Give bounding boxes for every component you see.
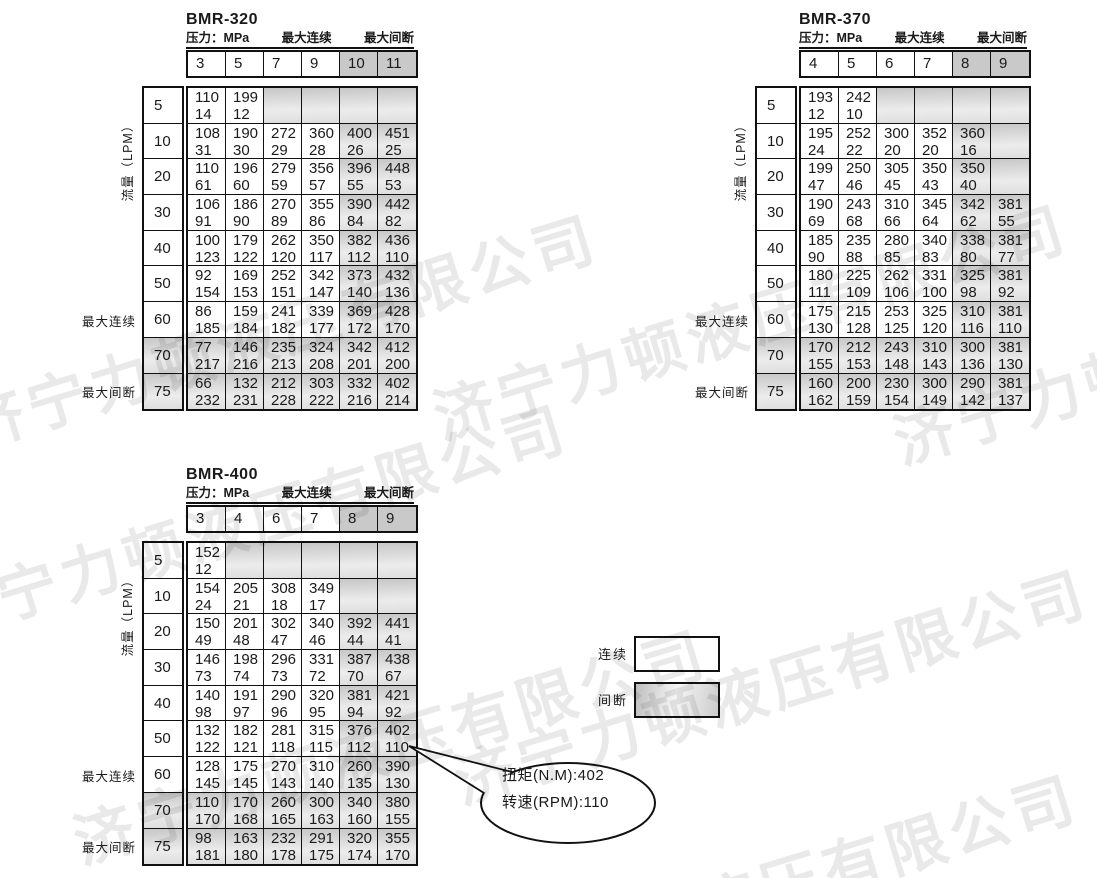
torque-value: 170 <box>808 339 838 356</box>
torque-speed-cell: 28085 <box>877 231 915 267</box>
torque-speed-cell: 40026 <box>340 124 378 160</box>
speed-value: 184 <box>233 320 263 337</box>
torque-value: 86 <box>195 303 225 320</box>
torque-speed-cell: 19030 <box>226 124 264 160</box>
speed-value: 100 <box>922 284 952 301</box>
torque-speed-cell: 402214 <box>378 374 416 410</box>
torque-speed-cell: 42192 <box>378 686 416 722</box>
torque-value: 350 <box>960 160 990 177</box>
torque-value: 100 <box>195 232 225 249</box>
torque-value: 396 <box>347 160 377 177</box>
torque-speed-cell: 23588 <box>839 231 877 267</box>
torque-speed-cell: 235213 <box>264 338 302 374</box>
flow-header-cell: 40 <box>144 686 182 722</box>
speed-value: 98 <box>960 284 990 301</box>
speed-value: 10 <box>846 106 876 123</box>
torque-speed-cell: 310143 <box>915 338 953 374</box>
torque-speed-cell: 25046 <box>839 159 877 195</box>
speed-value: 46 <box>309 632 339 649</box>
speed-value: 122 <box>195 739 225 756</box>
speed-value: 155 <box>385 811 416 828</box>
torque-value: 77 <box>195 339 225 356</box>
torque-speed-cell: 11061 <box>188 159 226 195</box>
torque-speed-cell: 281118 <box>264 721 302 757</box>
max-intermittent-col-label: 最大间断 <box>364 27 414 46</box>
torque-speed-cell: 376112 <box>340 721 378 757</box>
speed-value: 62 <box>960 213 990 230</box>
torque-value: 190 <box>233 125 263 142</box>
speed-value: 116 <box>960 320 990 337</box>
speed-value: 201 <box>347 356 377 373</box>
speed-value: 92 <box>998 284 1029 301</box>
torque-speed-cell: 20521 <box>226 579 264 615</box>
torque-speed-cell: 169153 <box>226 266 264 302</box>
speed-value: 72 <box>309 668 339 685</box>
torque-speed-cell: 170168 <box>226 793 264 829</box>
torque-speed-cell: 19524 <box>801 124 839 160</box>
pressure-header-cell: 9 <box>302 52 340 76</box>
flow-header-cell: 10 <box>757 124 795 160</box>
speed-value: 123 <box>195 249 225 266</box>
torque-speed-cell: 24210 <box>839 88 877 124</box>
empty-cell <box>378 88 416 124</box>
legend-intermittent-swatch <box>634 682 720 718</box>
torque-value: 392 <box>347 615 377 632</box>
torque-speed-cell: 19197 <box>226 686 264 722</box>
callout-torque-text: 扭矩(N.M):402 <box>502 764 604 785</box>
callout-tail-outline <box>409 746 512 793</box>
empty-cell <box>302 543 340 579</box>
speed-value: 90 <box>233 213 263 230</box>
torque-speed-cell: 432136 <box>378 266 416 302</box>
speed-value: 143 <box>922 356 952 373</box>
torque-speed-cell: 27229 <box>264 124 302 160</box>
torque-value: 253 <box>884 303 914 320</box>
torque-value: 169 <box>233 267 263 284</box>
torque-value: 196 <box>233 160 263 177</box>
max-continuous-row-label: 最大连续 <box>78 311 136 330</box>
torque-value: 300 <box>309 794 339 811</box>
torque-speed-grid: 1521215424205213081834917150492014830247… <box>186 541 418 866</box>
torque-value: 331 <box>309 651 339 668</box>
speed-value: 67 <box>385 668 416 685</box>
flow-header-cell: 60 <box>757 302 795 338</box>
torque-value: 436 <box>385 232 416 249</box>
torque-value: 339 <box>309 303 339 320</box>
torque-speed-cell: 159184 <box>226 302 264 338</box>
speed-value: 110 <box>998 320 1029 337</box>
torque-speed-cell: 262106 <box>877 266 915 302</box>
pressure-header-cell: 8 <box>340 507 378 531</box>
speed-value: 145 <box>233 775 263 792</box>
torque-value: 310 <box>922 339 952 356</box>
torque-value: 281 <box>271 722 301 739</box>
torque-value: 232 <box>271 830 301 847</box>
speed-value: 45 <box>884 177 914 194</box>
torque-speed-cell: 32598 <box>953 266 991 302</box>
speed-value: 174 <box>347 847 377 864</box>
torque-speed-cell: 34083 <box>915 231 953 267</box>
torque-value: 340 <box>347 794 377 811</box>
flow-header-cell: 70 <box>144 338 182 374</box>
torque-speed-cell: 182121 <box>226 721 264 757</box>
torque-value: 140 <box>195 687 225 704</box>
speed-value: 142 <box>960 392 990 409</box>
speed-value: 43 <box>922 177 952 194</box>
torque-speed-cell: 315115 <box>302 721 340 757</box>
speed-value: 136 <box>385 284 416 301</box>
torque-speed-cell: 14098 <box>188 686 226 722</box>
torque-speed-cell: 39244 <box>340 614 378 650</box>
speed-value: 57 <box>309 177 339 194</box>
pressure-header-cell: 7 <box>264 52 302 76</box>
empty-cell <box>915 88 953 124</box>
pressure-header-cell: 7 <box>302 507 340 531</box>
speed-value: 16 <box>960 142 990 159</box>
speed-value: 120 <box>922 320 952 337</box>
torque-speed-cell: 19947 <box>801 159 839 195</box>
torque-speed-cell: 310116 <box>953 302 991 338</box>
speed-value: 137 <box>998 392 1029 409</box>
torque-value: 305 <box>884 160 914 177</box>
empty-cell <box>378 543 416 579</box>
speed-value: 208 <box>309 356 339 373</box>
torque-value: 448 <box>385 160 416 177</box>
torque-value: 390 <box>385 758 416 775</box>
torque-speed-cell: 18590 <box>801 231 839 267</box>
speed-value: 86 <box>309 213 339 230</box>
flow-header-cell: 20 <box>144 159 182 195</box>
torque-value: 243 <box>846 196 876 213</box>
torque-value: 340 <box>309 615 339 632</box>
torque-value: 98 <box>195 830 225 847</box>
torque-speed-cell: 303222 <box>302 374 340 410</box>
torque-speed-cell: 212228 <box>264 374 302 410</box>
torque-speed-cell: 15049 <box>188 614 226 650</box>
torque-speed-cell: 35043 <box>915 159 953 195</box>
pressure-header-cell: 9 <box>991 52 1029 76</box>
torque-speed-cell: 320174 <box>340 829 378 865</box>
speed-value: 73 <box>271 668 301 685</box>
torque-value: 170 <box>233 794 263 811</box>
torque-speed-cell: 230154 <box>877 374 915 410</box>
empty-cell <box>264 88 302 124</box>
speed-value: 21 <box>233 597 263 614</box>
speed-value: 24 <box>195 597 225 614</box>
speed-value: 64 <box>922 213 952 230</box>
legend-intermittent-label: 间断 <box>556 690 628 709</box>
torque-speed-cell: 44282 <box>378 195 416 231</box>
torque-speed-cell: 260135 <box>340 757 378 793</box>
torque-value: 342 <box>960 196 990 213</box>
flow-header-cell: 40 <box>757 231 795 267</box>
speed-value: 162 <box>808 392 838 409</box>
speed-value: 47 <box>271 632 301 649</box>
torque-speed-cell: 30545 <box>877 159 915 195</box>
torque-value: 360 <box>960 125 990 142</box>
torque-value: 369 <box>347 303 377 320</box>
callout-tail-fill <box>409 746 512 793</box>
pressure-header-cell: 6 <box>264 507 302 531</box>
pressure-column-headers: 35791011 <box>186 50 418 78</box>
speed-value: 20 <box>922 142 952 159</box>
flow-header-cell: 5 <box>757 88 795 124</box>
torque-speed-cell: 19874 <box>226 650 264 686</box>
speed-value: 135 <box>347 775 377 792</box>
pressure-column-headers: 456789 <box>799 50 1031 78</box>
torque-value: 252 <box>846 125 876 142</box>
torque-value: 160 <box>808 375 838 392</box>
torque-value: 381 <box>347 687 377 704</box>
torque-speed-cell: 14673 <box>188 650 226 686</box>
torque-speed-cell: 29096 <box>264 686 302 722</box>
torque-speed-cell: 179122 <box>226 231 264 267</box>
torque-value: 198 <box>233 651 263 668</box>
torque-speed-cell: 291175 <box>302 829 340 865</box>
torque-speed-cell: 262120 <box>264 231 302 267</box>
speed-value: 200 <box>385 356 416 373</box>
speed-value: 140 <box>309 775 339 792</box>
torque-value: 342 <box>347 339 377 356</box>
torque-speed-cell: 32095 <box>302 686 340 722</box>
torque-value: 159 <box>233 303 263 320</box>
torque-value: 186 <box>233 196 263 213</box>
speed-value: 48 <box>233 632 263 649</box>
motor-table-bmr-400: BMR-400 压力：MPa 最大连续 最大间断 346789 流量（LPM） … <box>142 469 418 869</box>
speed-value: 170 <box>385 320 416 337</box>
torque-value: 152 <box>195 544 225 561</box>
torque-speed-cell: 34917 <box>302 579 340 615</box>
torque-value: 387 <box>347 651 377 668</box>
torque-value: 360 <box>309 125 339 142</box>
torque-speed-cell: 92154 <box>188 266 226 302</box>
torque-speed-cell: 241182 <box>264 302 302 338</box>
speed-value: 177 <box>309 320 339 337</box>
torque-value: 381 <box>998 339 1029 356</box>
pressure-header-cell: 11 <box>378 52 416 76</box>
torque-value: 199 <box>233 89 263 106</box>
torque-speed-cell: 36028 <box>302 124 340 160</box>
torque-speed-cell: 412200 <box>378 338 416 374</box>
empty-cell <box>226 543 264 579</box>
speed-value: 159 <box>846 392 876 409</box>
torque-value: 320 <box>309 687 339 704</box>
torque-value: 201 <box>233 615 263 632</box>
torque-speed-cell: 310140 <box>302 757 340 793</box>
speed-value: 68 <box>846 213 876 230</box>
torque-speed-cell: 34046 <box>302 614 340 650</box>
torque-speed-cell: 253125 <box>877 302 915 338</box>
speed-value: 14 <box>195 106 225 123</box>
speed-value: 70 <box>347 668 377 685</box>
max-intermittent-row-label: 最大间断 <box>78 837 136 856</box>
pressure-header-row: 压力：MPa 最大连续 最大间断 <box>186 31 414 49</box>
pressure-header-cell: 3 <box>188 52 226 76</box>
speed-value: 153 <box>233 284 263 301</box>
torque-speed-cell: 170155 <box>801 338 839 374</box>
pressure-header-cell: 5 <box>839 52 877 76</box>
speed-value: 47 <box>808 177 838 194</box>
speed-value: 55 <box>347 177 377 194</box>
torque-value: 421 <box>385 687 416 704</box>
torque-value: 442 <box>385 196 416 213</box>
speed-value: 41 <box>385 632 416 649</box>
torque-value: 338 <box>960 232 990 249</box>
pressure-header-cell: 8 <box>953 52 991 76</box>
torque-value: 310 <box>309 758 339 775</box>
torque-value: 350 <box>922 160 952 177</box>
torque-value: 132 <box>233 375 263 392</box>
speed-value: 175 <box>309 847 339 864</box>
speed-value: 106 <box>884 284 914 301</box>
torque-value: 212 <box>846 339 876 356</box>
torque-value: 260 <box>271 794 301 811</box>
torque-value: 402 <box>385 722 416 739</box>
torque-value: 315 <box>309 722 339 739</box>
speed-value: 168 <box>233 811 263 828</box>
torque-speed-cell: 232178 <box>264 829 302 865</box>
speed-value: 82 <box>385 213 416 230</box>
speed-value: 154 <box>195 284 225 301</box>
torque-speed-cell: 428170 <box>378 302 416 338</box>
torque-value: 191 <box>233 687 263 704</box>
torque-speed-cell: 43867 <box>378 650 416 686</box>
torque-value: 390 <box>347 196 377 213</box>
torque-speed-cell: 402110 <box>378 721 416 757</box>
torque-value: 291 <box>309 830 339 847</box>
speed-value: 98 <box>195 704 225 721</box>
torque-value: 182 <box>233 722 263 739</box>
speed-value: 232 <box>195 392 225 409</box>
torque-speed-cell: 342147 <box>302 266 340 302</box>
flow-header-cell: 50 <box>144 721 182 757</box>
speed-value: 31 <box>195 142 225 159</box>
speed-value: 170 <box>385 847 416 864</box>
torque-speed-cell: 325120 <box>915 302 953 338</box>
torque-value: 250 <box>846 160 876 177</box>
flow-header-cell: 20 <box>757 159 795 195</box>
flow-header-cell: 75 <box>144 829 182 865</box>
torque-speed-cell: 332216 <box>340 374 378 410</box>
torque-speed-cell: 38155 <box>991 195 1029 231</box>
torque-speed-cell: 225109 <box>839 266 877 302</box>
torque-value: 381 <box>998 375 1029 392</box>
torque-speed-cell: 300149 <box>915 374 953 410</box>
torque-speed-cell: 132122 <box>188 721 226 757</box>
speed-value: 55 <box>998 213 1029 230</box>
speed-value: 120 <box>271 249 301 266</box>
torque-value: 279 <box>271 160 301 177</box>
speed-value: 112 <box>347 249 377 266</box>
speed-value: 49 <box>195 632 225 649</box>
empty-cell <box>877 88 915 124</box>
torque-value: 381 <box>998 232 1029 249</box>
flow-axis-label: 流量（LPM） <box>730 100 748 220</box>
torque-value: 432 <box>385 267 416 284</box>
torque-value: 381 <box>998 196 1029 213</box>
torque-speed-cell: 38194 <box>340 686 378 722</box>
speed-value: 90 <box>808 249 838 266</box>
torque-value: 380 <box>385 794 416 811</box>
torque-value: 128 <box>195 758 225 775</box>
torque-value: 270 <box>271 196 301 213</box>
speed-value: 94 <box>347 704 377 721</box>
speed-value: 117 <box>309 249 339 266</box>
speed-value: 44 <box>347 632 377 649</box>
torque-value: 243 <box>884 339 914 356</box>
torque-value: 381 <box>998 267 1029 284</box>
flow-header-cell: 70 <box>757 338 795 374</box>
torque-speed-cell: 30818 <box>264 579 302 615</box>
torque-value: 108 <box>195 125 225 142</box>
torque-speed-cell: 243148 <box>877 338 915 374</box>
flow-axis-label: 流量（LPM） <box>117 555 135 675</box>
speed-value: 84 <box>347 213 377 230</box>
empty-cell <box>340 543 378 579</box>
torque-value: 355 <box>309 196 339 213</box>
torque-value: 355 <box>385 830 416 847</box>
pressure-header-cell: 6 <box>877 52 915 76</box>
torque-speed-cell: 300163 <box>302 793 340 829</box>
torque-value: 66 <box>195 375 225 392</box>
torque-speed-cell: 381130 <box>991 338 1029 374</box>
torque-value: 262 <box>884 267 914 284</box>
torque-value: 280 <box>884 232 914 249</box>
torque-value: 350 <box>309 232 339 249</box>
torque-value: 106 <box>195 196 225 213</box>
torque-value: 163 <box>233 830 263 847</box>
speed-value: 228 <box>271 392 301 409</box>
flow-header-cell: 70 <box>144 793 182 829</box>
torque-speed-cell: 44141 <box>378 614 416 650</box>
empty-cell <box>378 579 416 615</box>
torque-speed-cell: 300136 <box>953 338 991 374</box>
speed-value: 216 <box>347 392 377 409</box>
max-continuous-col-label: 最大连续 <box>895 27 945 46</box>
torque-value: 296 <box>271 651 301 668</box>
torque-value: 110 <box>195 160 225 177</box>
torque-value: 262 <box>271 232 301 249</box>
torque-speed-cell: 31066 <box>877 195 915 231</box>
torque-value: 235 <box>846 232 876 249</box>
flow-header-cell: 50 <box>757 266 795 302</box>
speed-value: 154 <box>884 392 914 409</box>
torque-speed-cell: 110170 <box>188 793 226 829</box>
datasheet-page: 济宁力顿液压有限公司 济宁力顿液压有限公司 济宁力顿液压有限公司 济宁力顿液压有… <box>0 0 1097 878</box>
pressure-unit-label: 压力：MPa <box>186 482 249 501</box>
speed-value: 181 <box>195 847 225 864</box>
flow-header-cell: 10 <box>144 124 182 160</box>
torque-speed-cell: 38770 <box>340 650 378 686</box>
speed-value: 110 <box>385 249 416 266</box>
speed-value: 110 <box>385 739 416 756</box>
torque-value: 373 <box>347 267 377 284</box>
torque-value: 345 <box>922 196 952 213</box>
torque-speed-cell: 390130 <box>378 757 416 793</box>
speed-value: 109 <box>846 284 876 301</box>
torque-value: 180 <box>808 267 838 284</box>
torque-speed-cell: 15212 <box>188 543 226 579</box>
torque-speed-cell: 27089 <box>264 195 302 231</box>
empty-cell <box>340 88 378 124</box>
speed-value: 74 <box>233 668 263 685</box>
torque-value: 382 <box>347 232 377 249</box>
speed-value: 163 <box>309 811 339 828</box>
torque-speed-cell: 290142 <box>953 374 991 410</box>
empty-cell <box>302 88 340 124</box>
pressure-header-row: 压力：MPa 最大连续 最大间断 <box>186 486 414 504</box>
speed-value: 53 <box>385 177 416 194</box>
